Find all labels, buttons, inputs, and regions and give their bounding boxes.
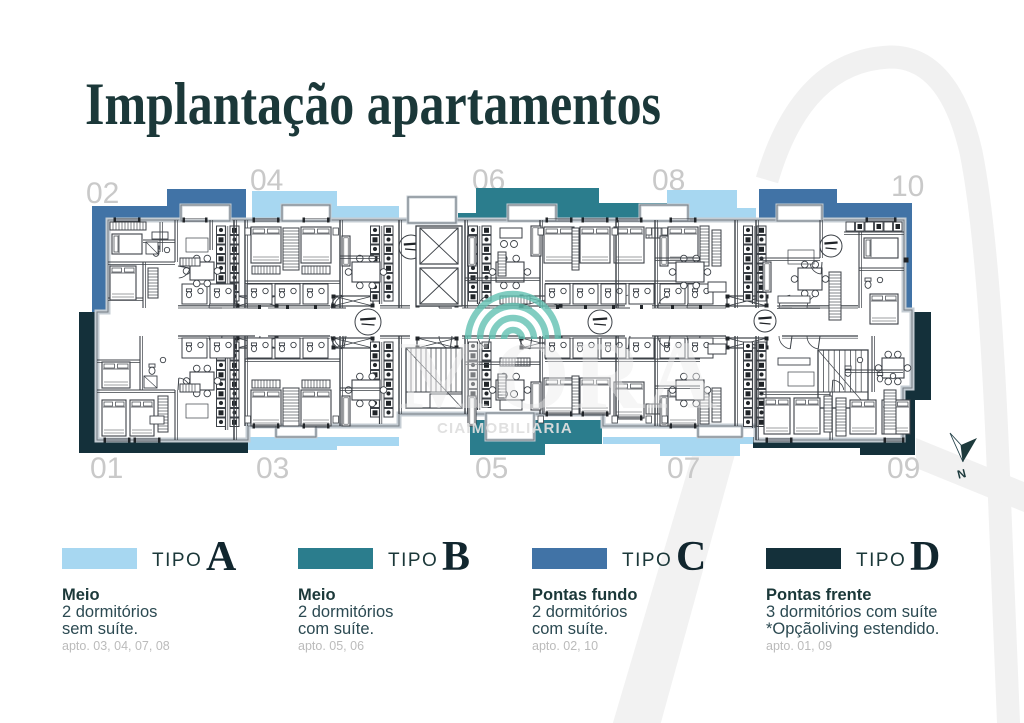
svg-text:TIPO: TIPO [622,550,672,571]
svg-text:TIPO: TIPO [388,550,438,571]
svg-text:com suíte.: com suíte. [298,620,374,638]
svg-text:apto. 02, 10: apto. 02, 10 [532,639,598,653]
svg-text:TIPO: TIPO [856,550,906,571]
svg-text:apto. 03, 04, 07, 08: apto. 03, 04, 07, 08 [62,639,170,653]
svg-text:apto. 01, 09: apto. 01, 09 [766,639,832,653]
svg-text:B: B [442,534,470,580]
svg-text:01: 01 [90,452,123,485]
svg-text:Meio: Meio [298,586,336,604]
svg-text:Pontas fundo: Pontas fundo [532,586,637,604]
svg-text:sem suíte.: sem suíte. [62,620,138,638]
svg-text:C: C [676,534,706,580]
svg-text:3 dormitórios com suíte: 3 dormitórios com suíte [766,603,937,621]
svg-text:2 dormitórios: 2 dormitórios [62,603,157,621]
svg-text:07: 07 [667,452,700,485]
svg-text:09: 09 [887,452,920,485]
svg-text:apto. 05, 06: apto. 05, 06 [298,639,364,653]
svg-text:02: 02 [86,177,119,210]
svg-text:*Opçãoliving estendido.: *Opçãoliving estendido. [766,620,939,638]
svg-text:Implantação apartamentos: Implantação apartamentos [85,71,661,137]
svg-text:TIPO: TIPO [152,550,202,571]
svg-text:03: 03 [256,452,289,485]
svg-text:com suíte.: com suíte. [532,620,608,638]
svg-text:05: 05 [475,452,508,485]
svg-text:CIAIMOBILIARIA: CIAIMOBILIARIA [437,420,573,437]
svg-text:Meio: Meio [62,586,100,604]
svg-text:A: A [206,534,237,580]
svg-text:2 dormitórios: 2 dormitórios [532,603,627,621]
svg-text:D: D [910,534,940,580]
svg-text:10: 10 [891,170,924,203]
svg-text:2 dormitórios: 2 dormitórios [298,603,393,621]
svg-text:Pontas frente: Pontas frente [766,586,871,604]
